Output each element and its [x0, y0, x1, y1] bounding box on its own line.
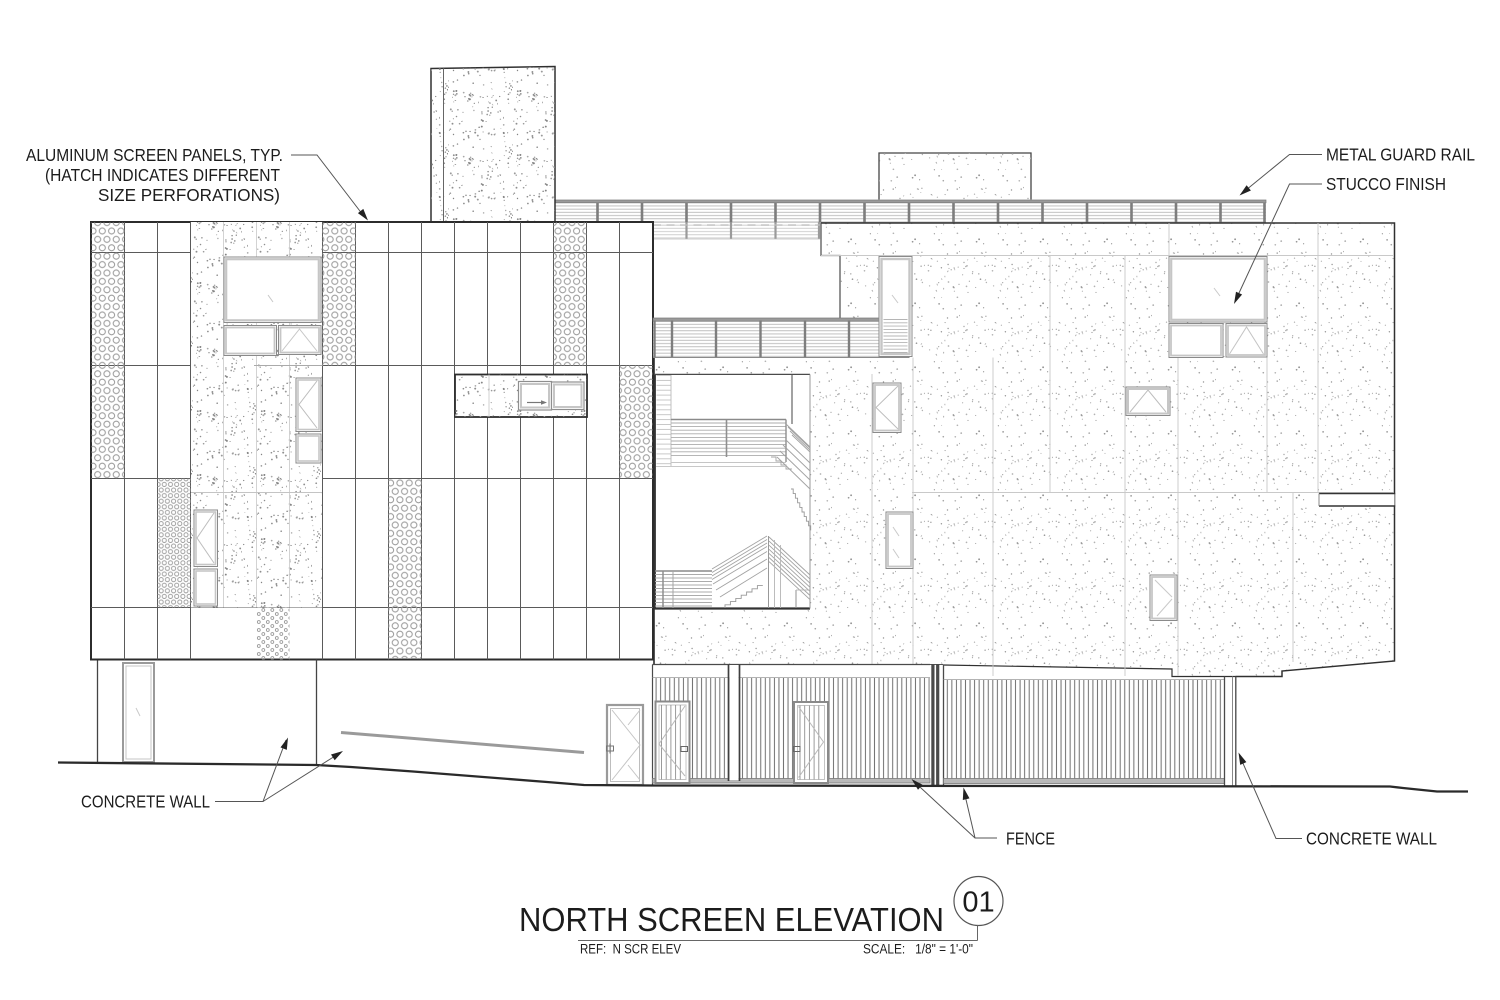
svg-text:FENCE: FENCE — [1006, 829, 1055, 849]
svg-text:NORTH SCREEN ELEVATION: NORTH SCREEN ELEVATION — [519, 902, 944, 939]
svg-text:REF: N SCR ELEV: REF: N SCR ELEV — [580, 942, 681, 957]
svg-text:(HATCH INDICATES DIFFERENT: (HATCH INDICATES DIFFERENT — [45, 165, 280, 185]
svg-text:SCALE: 1/8" = 1'-0": SCALE: 1/8" = 1'-0" — [863, 942, 973, 957]
svg-text:CONCRETE WALL: CONCRETE WALL — [1306, 829, 1437, 849]
svg-text:ALUMINUM SCREEN PANELS, TYP.: ALUMINUM SCREEN PANELS, TYP. — [26, 145, 283, 165]
svg-text:SIZE PERFORATIONS): SIZE PERFORATIONS) — [98, 185, 280, 205]
svg-text:METAL GUARD RAIL: METAL GUARD RAIL — [1326, 145, 1475, 165]
svg-text:CONCRETE WALL: CONCRETE WALL — [81, 792, 210, 812]
svg-text:STUCCO FINISH: STUCCO FINISH — [1326, 174, 1446, 194]
svg-text:01: 01 — [962, 887, 994, 919]
